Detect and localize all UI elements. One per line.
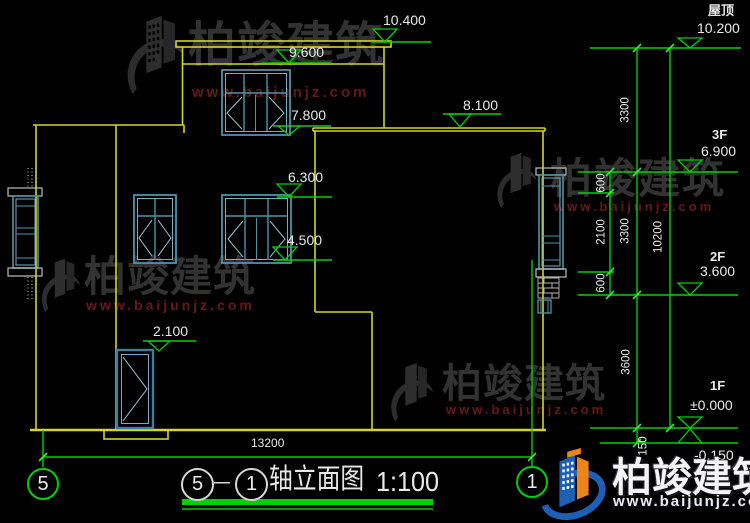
level-label-8100: 8.100 xyxy=(463,98,498,112)
window-2f-right xyxy=(222,195,291,263)
bay-window-left xyxy=(8,168,42,301)
drawing-title: 轴立面图 xyxy=(269,465,364,493)
level-label-10200: 10.200 xyxy=(697,21,740,35)
penthouse-window xyxy=(222,70,290,135)
dim-600-top: 600 xyxy=(596,173,608,192)
dim-2100: 2100 xyxy=(596,219,608,245)
floor-label-2f: 2F xyxy=(710,250,725,263)
floor-label-3f: 3F xyxy=(712,128,727,141)
axis-number: 1 xyxy=(526,471,537,494)
site-logo-url: www.baijunjz.com xyxy=(613,494,750,509)
level-label-0000: ±0.000 xyxy=(690,398,733,412)
level-label-3600: 3.600 xyxy=(700,264,735,278)
title-underline xyxy=(182,499,433,509)
dim-600-bottom: 600 xyxy=(596,273,608,292)
site-logo-icon xyxy=(537,448,611,523)
dim-3600: 3600 xyxy=(621,349,633,375)
dim-10200: 10200 xyxy=(653,221,665,253)
floor-label-roof: 屋顶 xyxy=(708,4,734,17)
floor-label-1f: 1F xyxy=(710,379,725,392)
title-dash: － xyxy=(211,473,233,495)
level-label-9600: 9.600 xyxy=(289,45,324,59)
dim-3300-top: 3300 xyxy=(620,97,632,123)
level-label-4500: 4.500 xyxy=(287,233,322,247)
level-label-7800: 7.800 xyxy=(291,108,326,122)
dim-13200: 13200 xyxy=(251,437,284,449)
window-2f-left xyxy=(134,195,176,263)
windows xyxy=(8,70,566,428)
drawing-scale: 1:100 xyxy=(376,468,439,496)
site-logo-brand: 柏竣建筑 xyxy=(612,458,750,498)
entry-door xyxy=(117,350,153,428)
axis-bubble-5: 5 xyxy=(27,468,59,500)
level-label-6300: 6.300 xyxy=(288,170,323,184)
dim-3300-mid: 3300 xyxy=(620,218,632,244)
dimension-lines xyxy=(43,42,741,467)
level-label-2100: 2.100 xyxy=(153,324,188,338)
title-axis-number: 5 xyxy=(192,473,203,496)
title-axis-bubble-5: 5 xyxy=(181,468,214,501)
title-axis-bubble-1: 1 xyxy=(235,468,268,501)
axis-number: 5 xyxy=(37,473,48,496)
dim-150: 150 xyxy=(638,436,650,455)
title-axis-number: 1 xyxy=(246,473,257,496)
level-label-6900: 6.900 xyxy=(701,144,736,158)
brick-hatch xyxy=(538,278,559,298)
bay-window-right xyxy=(536,168,566,313)
cad-elevation-drawing: 柏竣建筑 www.baijunjz.com 柏竣建筑 www.baijunjz.… xyxy=(0,0,750,523)
level-label-10400: 10.400 xyxy=(383,13,426,27)
